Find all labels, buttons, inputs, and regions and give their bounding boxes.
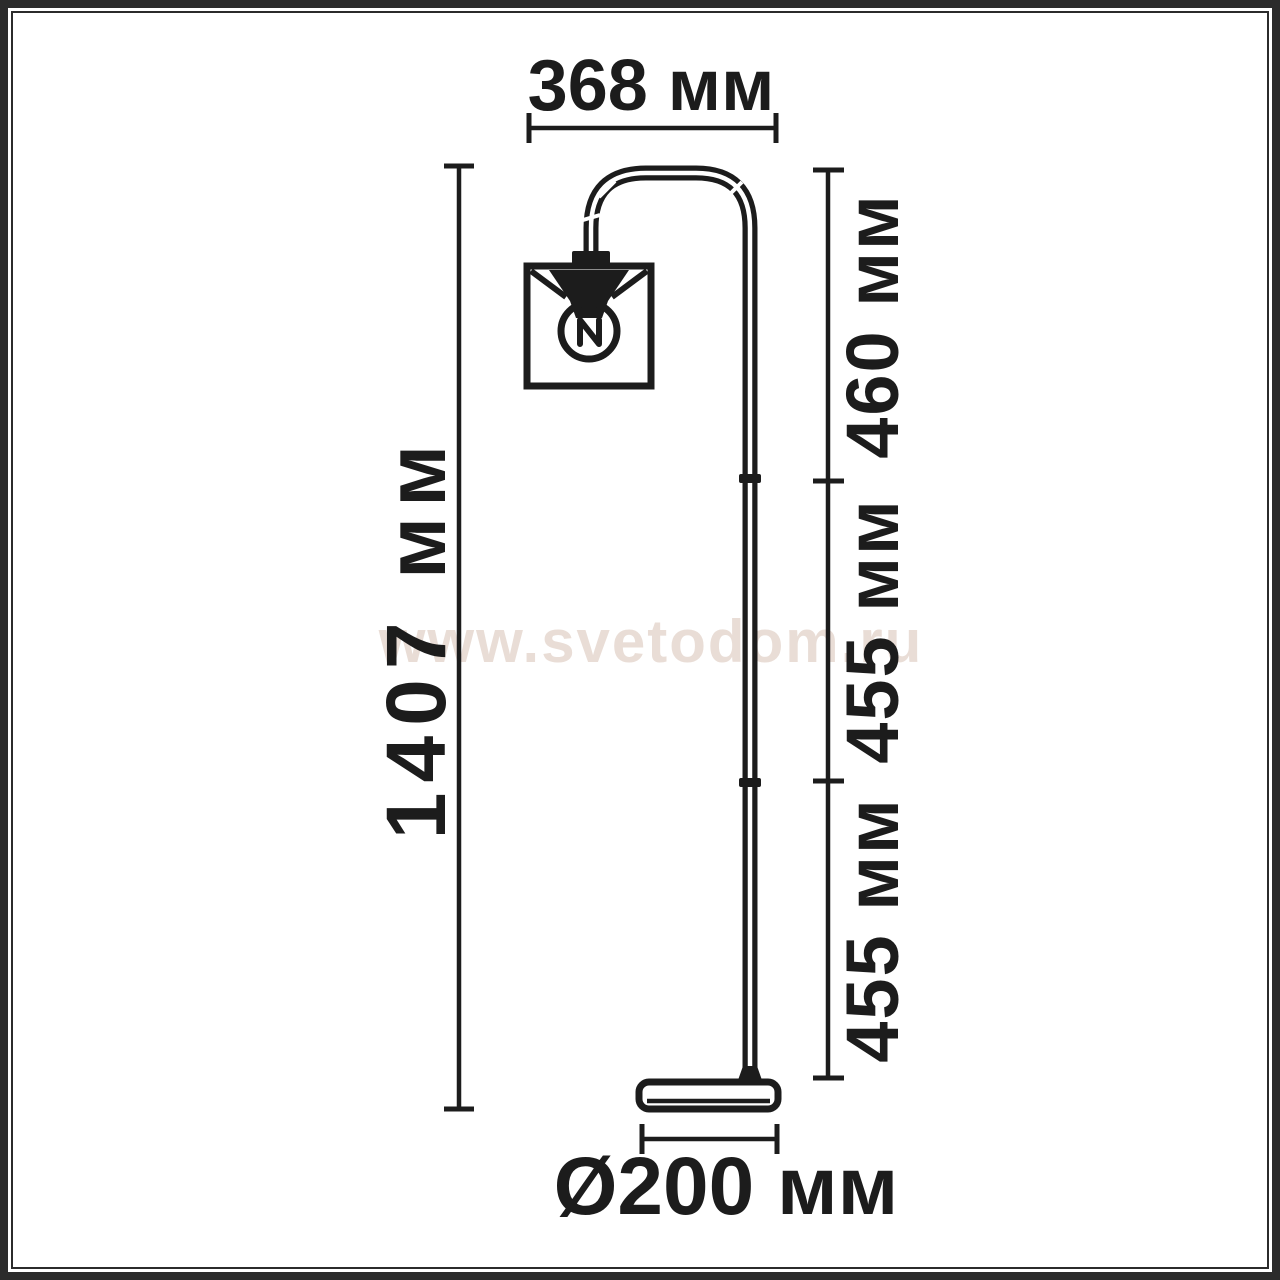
dim-label-total-height: 1407 мм bbox=[369, 435, 463, 839]
dim-label-middle-segment: 455 мм bbox=[831, 498, 914, 764]
dim-label-lower-segment: 455 мм bbox=[831, 797, 914, 1063]
dimension-top-width: 368 мм bbox=[528, 46, 776, 143]
diagram-svg: www.svetodom.ru bbox=[0, 0, 1280, 1280]
lamp-base bbox=[639, 1082, 778, 1109]
dim-label-top-width: 368 мм bbox=[528, 46, 775, 126]
dimension-right-segments: 460 мм 455 мм 455 мм bbox=[813, 170, 914, 1078]
dim-label-upper-segment: 460 мм bbox=[831, 193, 914, 459]
bulb-filament-icon bbox=[580, 320, 599, 344]
dimension-base-diameter: Ø200 мм bbox=[554, 1124, 899, 1232]
dim-label-base-diameter: Ø200 мм bbox=[554, 1141, 899, 1232]
pole-joint-upper bbox=[739, 474, 761, 483]
dimension-total-height: 1407 мм bbox=[369, 166, 474, 1109]
pole-joint-lower bbox=[739, 778, 761, 787]
socket-collar bbox=[572, 251, 610, 267]
lamp-dimension-diagram: www.svetodom.ru bbox=[0, 0, 1280, 1280]
